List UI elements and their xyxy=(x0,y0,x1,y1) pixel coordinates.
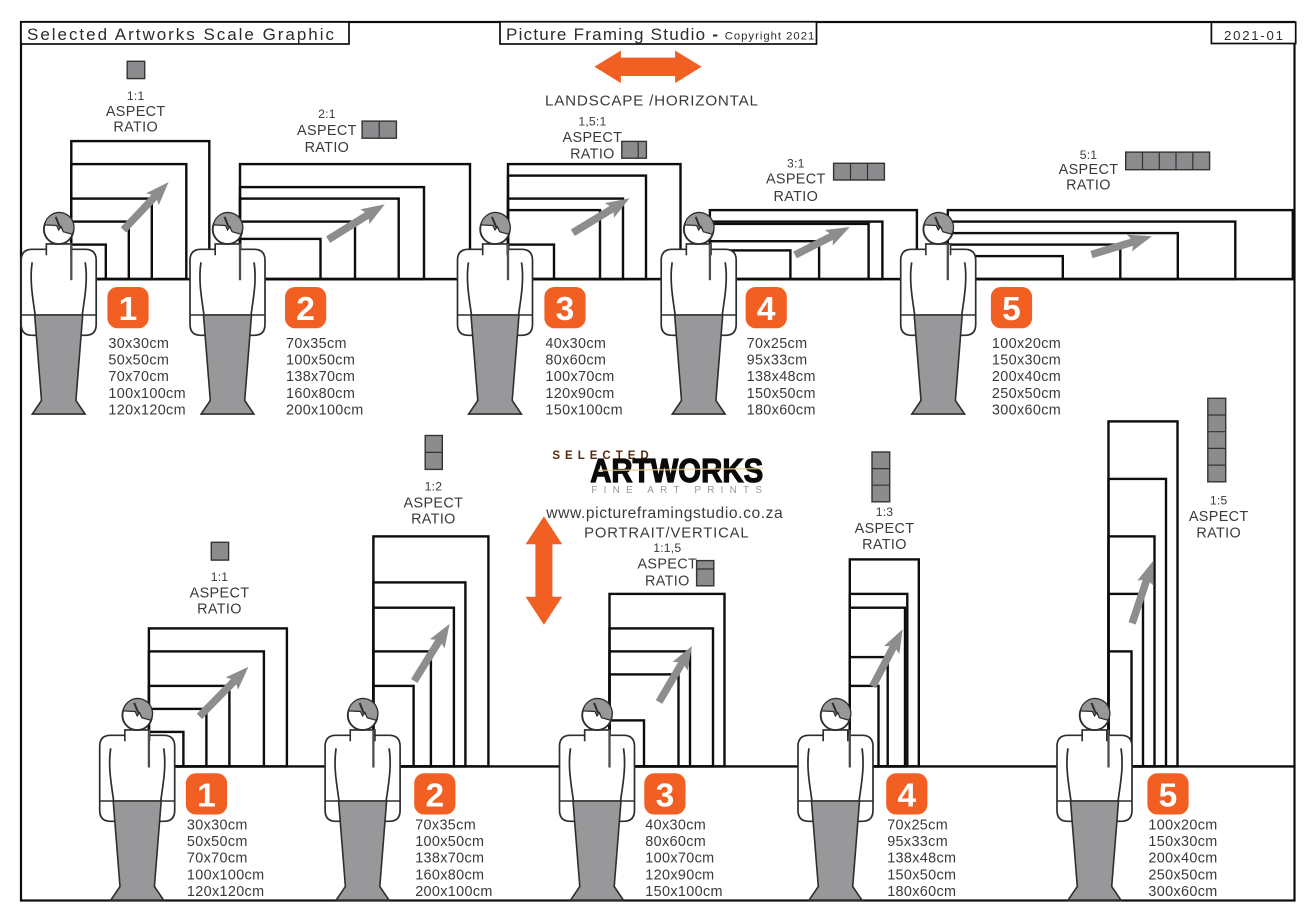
svg-text:250x50cm: 250x50cm xyxy=(992,386,1061,402)
svg-text:70x25cm: 70x25cm xyxy=(747,336,808,352)
svg-text:150x100cm: 150x100cm xyxy=(545,403,623,419)
svg-text:ASPECT: ASPECT xyxy=(297,123,357,139)
svg-text:100x20cm: 100x20cm xyxy=(992,336,1061,352)
svg-text:100x20cm: 100x20cm xyxy=(1148,817,1217,833)
svg-text:RATIO: RATIO xyxy=(862,537,907,553)
svg-text:50x50cm: 50x50cm xyxy=(108,353,169,369)
svg-text:3: 3 xyxy=(656,777,675,814)
svg-text:70x35cm: 70x35cm xyxy=(415,817,476,833)
svg-text:100x100cm: 100x100cm xyxy=(108,386,186,402)
svg-text:138x70cm: 138x70cm xyxy=(286,369,355,385)
svg-text:138x48cm: 138x48cm xyxy=(747,369,816,385)
svg-text:ASPECT: ASPECT xyxy=(563,130,623,146)
svg-text:2: 2 xyxy=(296,291,315,328)
svg-text:100x100cm: 100x100cm xyxy=(187,867,265,883)
svg-text:1:1,5: 1:1,5 xyxy=(653,541,681,555)
svg-text:30x30cm: 30x30cm xyxy=(187,817,248,833)
svg-text:100x70cm: 100x70cm xyxy=(545,369,614,385)
svg-text:120x120cm: 120x120cm xyxy=(108,403,186,419)
svg-text:95x33cm: 95x33cm xyxy=(747,353,808,369)
svg-text:160x80cm: 160x80cm xyxy=(286,386,355,402)
svg-text:RATIO: RATIO xyxy=(411,512,456,528)
svg-text:70x35cm: 70x35cm xyxy=(286,336,347,352)
svg-text:Selected Artworks Scale Graphi: Selected Artworks Scale Graphic xyxy=(27,25,335,44)
svg-text:200x100cm: 200x100cm xyxy=(415,884,493,900)
svg-text:RATIO: RATIO xyxy=(197,602,242,618)
svg-text:ASPECT: ASPECT xyxy=(855,521,915,537)
svg-text:ASPECT: ASPECT xyxy=(404,495,464,511)
svg-text:100x50cm: 100x50cm xyxy=(286,353,355,369)
svg-text:1:5: 1:5 xyxy=(1210,493,1228,507)
svg-text:3:1: 3:1 xyxy=(787,157,805,171)
svg-text:ASPECT: ASPECT xyxy=(106,104,166,120)
svg-text:2:1: 2:1 xyxy=(318,107,336,121)
svg-text:200x40cm: 200x40cm xyxy=(992,369,1061,385)
svg-text:95x33cm: 95x33cm xyxy=(887,834,948,850)
svg-text:4: 4 xyxy=(897,777,916,814)
svg-text:138x70cm: 138x70cm xyxy=(415,851,484,867)
svg-text:Picture Framing Studio -: Picture Framing Studio - xyxy=(506,25,718,44)
svg-text:ASPECT: ASPECT xyxy=(766,171,826,187)
svg-text:1,5:1: 1,5:1 xyxy=(578,115,606,129)
svg-text:120x90cm: 120x90cm xyxy=(645,867,714,883)
svg-text:RATIO: RATIO xyxy=(305,140,350,156)
svg-text:Copyright 2021: Copyright 2021 xyxy=(725,31,815,43)
svg-text:1:1: 1:1 xyxy=(127,89,145,103)
svg-text:70x70cm: 70x70cm xyxy=(187,851,248,867)
svg-text:1:2: 1:2 xyxy=(425,480,443,494)
svg-text:150x50cm: 150x50cm xyxy=(747,386,816,402)
svg-text:30x30cm: 30x30cm xyxy=(108,336,169,352)
svg-text:40x30cm: 40x30cm xyxy=(645,817,706,833)
svg-text:FINE ART PRINTS: FINE ART PRINTS xyxy=(591,485,762,496)
svg-text:ASPECT: ASPECT xyxy=(637,557,697,573)
svg-text:300x60cm: 300x60cm xyxy=(1148,884,1217,900)
svg-text:5:1: 5:1 xyxy=(1080,148,1098,162)
svg-text:2: 2 xyxy=(425,777,444,814)
svg-text:150x50cm: 150x50cm xyxy=(887,867,956,883)
svg-text:PORTRAIT/VERTICAL: PORTRAIT/VERTICAL xyxy=(584,526,749,542)
svg-text:150x30cm: 150x30cm xyxy=(1148,834,1217,850)
svg-text:RATIO: RATIO xyxy=(570,146,615,162)
svg-text:1: 1 xyxy=(119,291,138,328)
svg-text:RATIO: RATIO xyxy=(645,573,690,589)
svg-text:RATIO: RATIO xyxy=(1196,526,1241,542)
svg-text:LANDSCAPE /HORIZONTAL: LANDSCAPE /HORIZONTAL xyxy=(545,93,758,110)
svg-text:www.pictureframingstudio.co.za: www.pictureframingstudio.co.za xyxy=(545,505,783,522)
svg-text:1: 1 xyxy=(197,777,216,814)
svg-text:120x90cm: 120x90cm xyxy=(545,386,614,402)
svg-text:100x70cm: 100x70cm xyxy=(645,851,714,867)
svg-text:160x80cm: 160x80cm xyxy=(415,867,484,883)
svg-text:70x25cm: 70x25cm xyxy=(887,817,948,833)
svg-text:300x60cm: 300x60cm xyxy=(992,403,1061,419)
svg-text:50x50cm: 50x50cm xyxy=(187,834,248,850)
svg-text:40x30cm: 40x30cm xyxy=(545,336,606,352)
svg-text:RATIO: RATIO xyxy=(113,120,158,136)
svg-text:120x120cm: 120x120cm xyxy=(187,884,265,900)
svg-text:250x50cm: 250x50cm xyxy=(1148,867,1217,883)
svg-text:70x70cm: 70x70cm xyxy=(108,369,169,385)
svg-text:5: 5 xyxy=(1002,291,1021,328)
svg-text:138x48cm: 138x48cm xyxy=(887,851,956,867)
svg-text:200x100cm: 200x100cm xyxy=(286,403,364,419)
svg-text:RATIO: RATIO xyxy=(1066,178,1111,194)
svg-text:5: 5 xyxy=(1159,777,1178,814)
svg-text:180x60cm: 180x60cm xyxy=(887,884,956,900)
svg-text:180x60cm: 180x60cm xyxy=(747,403,816,419)
svg-text:ASPECT: ASPECT xyxy=(1189,509,1249,525)
svg-text:80x60cm: 80x60cm xyxy=(645,834,706,850)
svg-text:1:1: 1:1 xyxy=(211,570,229,584)
svg-text:150x100cm: 150x100cm xyxy=(645,884,723,900)
svg-text:ASPECT: ASPECT xyxy=(1059,162,1119,178)
svg-text:150x30cm: 150x30cm xyxy=(992,353,1061,369)
svg-text:4: 4 xyxy=(757,291,776,328)
svg-text:ASPECT: ASPECT xyxy=(190,586,250,602)
svg-text:3: 3 xyxy=(556,291,575,328)
svg-text:RATIO: RATIO xyxy=(773,189,818,205)
svg-text:200x40cm: 200x40cm xyxy=(1148,851,1217,867)
svg-text:80x60cm: 80x60cm xyxy=(545,353,606,369)
svg-text:100x50cm: 100x50cm xyxy=(415,834,484,850)
svg-text:1:3: 1:3 xyxy=(876,505,894,519)
